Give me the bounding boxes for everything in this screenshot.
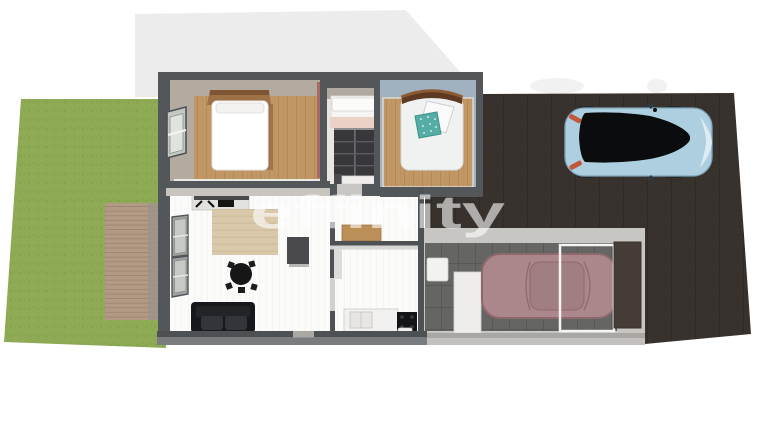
svg-text:effinity: effinity	[250, 186, 506, 238]
